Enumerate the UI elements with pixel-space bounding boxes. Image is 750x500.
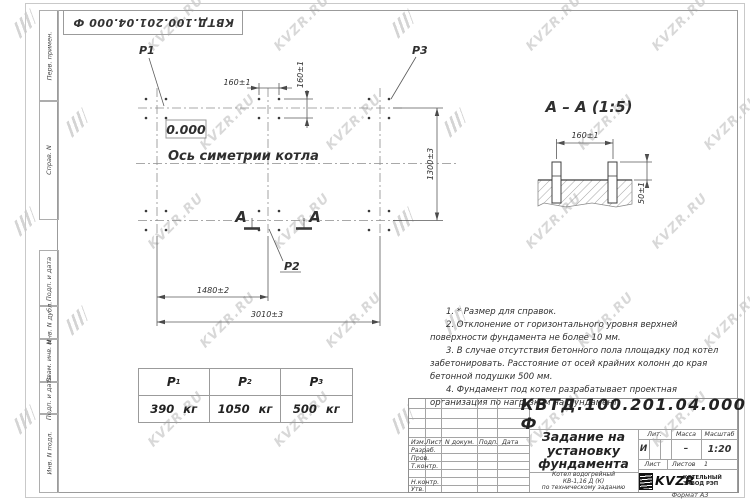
section-title: А – А (1:5) xyxy=(545,98,633,116)
divider-line xyxy=(649,439,650,459)
elevation-value: 0.000 xyxy=(166,122,206,137)
row-razrab: Разраб. xyxy=(411,447,436,454)
row-tkontr: Т.контр. xyxy=(411,463,438,470)
sheets-label: Листов xyxy=(672,461,696,468)
mass-label: Масса xyxy=(671,429,701,439)
divider-line xyxy=(409,418,529,419)
divider-line xyxy=(638,469,738,470)
section-dim-160: 160±1 xyxy=(571,131,598,140)
kvzr-logo-caption: КОТЕЛЬНЫЙ ЗАВОД РЭП xyxy=(683,475,722,487)
load-label-p1: Р1 xyxy=(139,44,155,57)
sheet-label: Лист xyxy=(638,459,667,469)
symmetry-axis-label: Ось симетрии котла xyxy=(168,149,319,164)
note-1: 1. * Размер для справок. xyxy=(430,306,736,319)
load-value-p1: 390 кг xyxy=(138,395,210,423)
col-podp: Подп. xyxy=(479,439,498,446)
format-label: Формат А3 xyxy=(640,491,740,499)
divider-line xyxy=(409,428,529,429)
dim-1480: 1480±2 xyxy=(197,286,229,295)
section-dim-50: 50±1 xyxy=(637,182,646,204)
section-letter-left: А xyxy=(234,208,247,226)
load-label-p2: Р2 xyxy=(284,260,300,273)
section-view xyxy=(538,139,652,207)
lit-label: Лит. xyxy=(638,429,671,439)
lit-value: И xyxy=(638,439,649,459)
section-letter-right: А xyxy=(308,208,321,226)
dim-160-vertical: 160±1 xyxy=(296,61,305,88)
plan-dimension-lines xyxy=(149,57,443,326)
dim-1300: 1300±3 xyxy=(426,148,435,180)
drawing-sheet: KVZR.RUKVZR.RUKVZR.RUKVZR.RUKVZR.RUKVZR.… xyxy=(0,0,750,500)
drawing-designation: КВТД.100.201.04.000 Ф xyxy=(529,399,738,429)
row-utv: Утв. xyxy=(411,486,424,493)
load-label-p3: Р3 xyxy=(412,44,428,57)
scale-label: Масштаб xyxy=(701,429,738,439)
kvzr-logo-icon xyxy=(640,474,652,489)
divider-line xyxy=(667,459,668,469)
anchor-bolt-left xyxy=(552,162,561,203)
title-block: Изм.Лист N докум. Подп. Дата Разраб. Про… xyxy=(408,398,739,493)
divider-line xyxy=(660,439,661,459)
dim-160-horizontal: 160±1 xyxy=(223,78,250,87)
mass-value: – xyxy=(671,439,701,459)
anchor-bolt-right xyxy=(608,162,617,203)
loads-table: Р1 Р2 Р3 390 кг 1050 кг 500 кг xyxy=(138,368,352,422)
row-prov: Пров. xyxy=(411,455,429,462)
load-header-p2: Р2 xyxy=(209,368,281,396)
dim-3010: 3010±3 xyxy=(251,310,283,319)
product-name: Котел водогрейный КВ-1,16 Д (К) по техни… xyxy=(529,472,638,492)
scale-value: 1:20 xyxy=(701,439,738,459)
col-data: Дата xyxy=(502,439,518,446)
col-izm-list: Изм.Лист xyxy=(411,439,442,446)
load-header-p1: Р1 xyxy=(138,368,210,396)
load-header-p3: Р3 xyxy=(280,368,352,396)
load-value-p3: 500 кг xyxy=(280,395,352,423)
divider-line xyxy=(409,408,529,409)
note-3: 3. В случае отсутствия бетонного пола пл… xyxy=(430,345,736,384)
sheets-value: 1 xyxy=(704,461,708,468)
note-2: 2. Отклонение от горизонтального уровня … xyxy=(430,319,736,345)
col-n-dokum: N докум. xyxy=(445,439,474,446)
load-value-p2: 1050 кг xyxy=(209,395,281,423)
document-title: Задание на установку фундамента xyxy=(529,429,638,472)
row-nkontr: Н.контр. xyxy=(411,479,439,486)
anchor-bolt-points xyxy=(145,98,391,232)
